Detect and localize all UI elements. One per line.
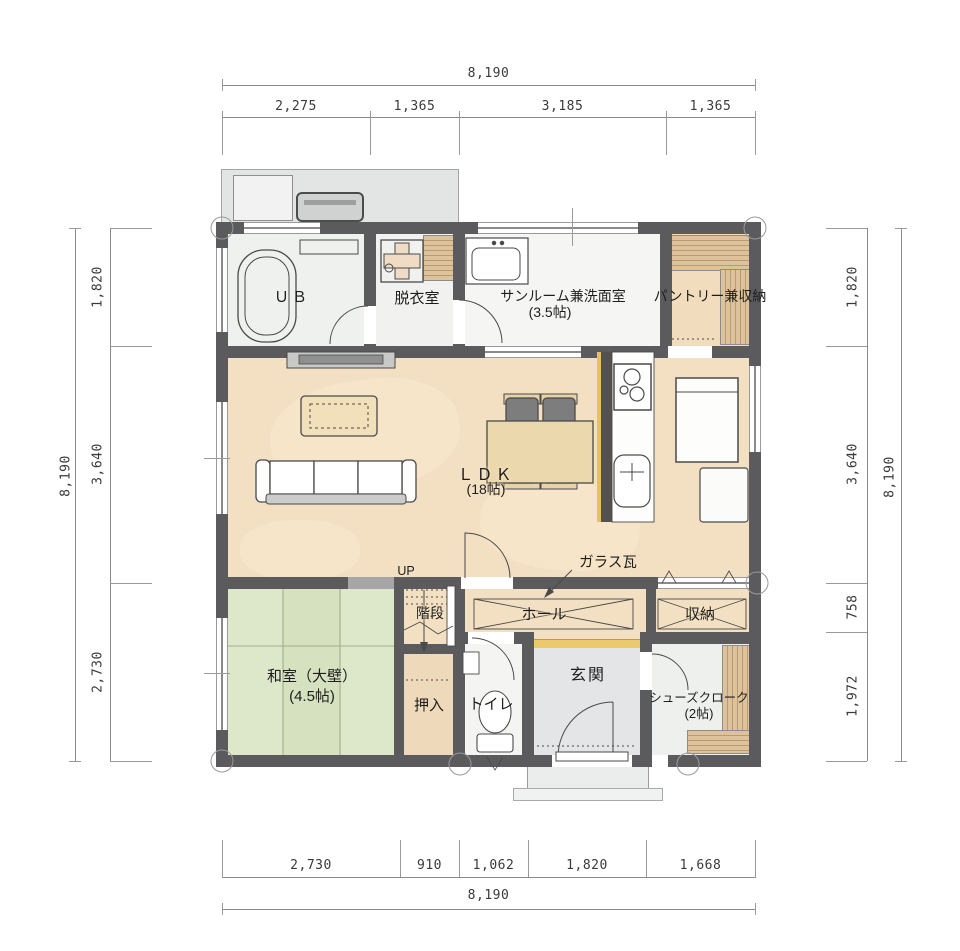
entry-door-leaf: [556, 752, 628, 761]
faucet: [500, 241, 503, 244]
label-washitsu-size: (4.5帖): [252, 685, 372, 706]
floor-plan-canvas: 8,190 2,275 1,365 3,185 1,365 2,730 910 …: [0, 0, 960, 951]
grid-bubble: [211, 217, 233, 239]
label-stairs-up: UP: [390, 564, 422, 578]
kitchen-panel: [601, 352, 612, 522]
label-shoe-closet-size: (2帖): [660, 703, 738, 722]
door-arc-shoe-closet: [652, 654, 688, 690]
refrigerator: [676, 378, 738, 462]
sofa-cushion: [314, 461, 358, 494]
grid-bubble: [449, 753, 471, 775]
label-oshiire: 押入: [403, 694, 455, 715]
label-dressing: 脱衣室: [382, 287, 452, 308]
faucet: [492, 241, 495, 244]
ub-counter: [300, 240, 358, 254]
toilet-hand-basin: [463, 652, 479, 674]
label-hall: ホール: [515, 603, 573, 624]
label-toilet: トイレ: [460, 693, 522, 714]
label-washitsu: 和室（大壁）: [252, 665, 372, 686]
label-ub: ＵＢ: [262, 286, 322, 307]
label-glass-tile: ガラス瓦: [556, 551, 660, 572]
leader-arrow-head: [544, 587, 554, 598]
label-genkan: 玄関: [556, 661, 620, 685]
kitchen-accent: [597, 352, 601, 522]
door-arc-genkan: [558, 702, 613, 757]
sofa-cushion: [270, 461, 314, 494]
toilet-mark: [487, 757, 503, 770]
label-sunroom-size: (3.5帖): [490, 302, 610, 322]
label-stairs: 階段: [406, 603, 454, 623]
grid-bubble: [744, 217, 766, 239]
cabinet: [700, 468, 748, 522]
tv: [299, 355, 383, 364]
grid-bubble: [211, 750, 233, 772]
grid-bubble: [746, 572, 768, 594]
label-ldk-size: (18帖): [436, 479, 536, 499]
grid-bubble: [677, 753, 699, 775]
sofa-base: [266, 494, 406, 504]
door-arc-hall: [465, 533, 510, 578]
washer-cross: [384, 254, 420, 268]
sofa-cushion: [358, 461, 402, 494]
label-pantry: パントリー兼収納: [630, 286, 790, 306]
door-arc-ub: [330, 306, 368, 344]
label-storage: 収納: [672, 603, 728, 624]
low-table: [301, 396, 377, 436]
opening-break-marks: [662, 571, 736, 583]
stair-arrow-head: [420, 642, 428, 653]
toilet-tank: [477, 734, 513, 752]
cooktop: [614, 364, 651, 410]
stair-break-line: [404, 622, 453, 634]
